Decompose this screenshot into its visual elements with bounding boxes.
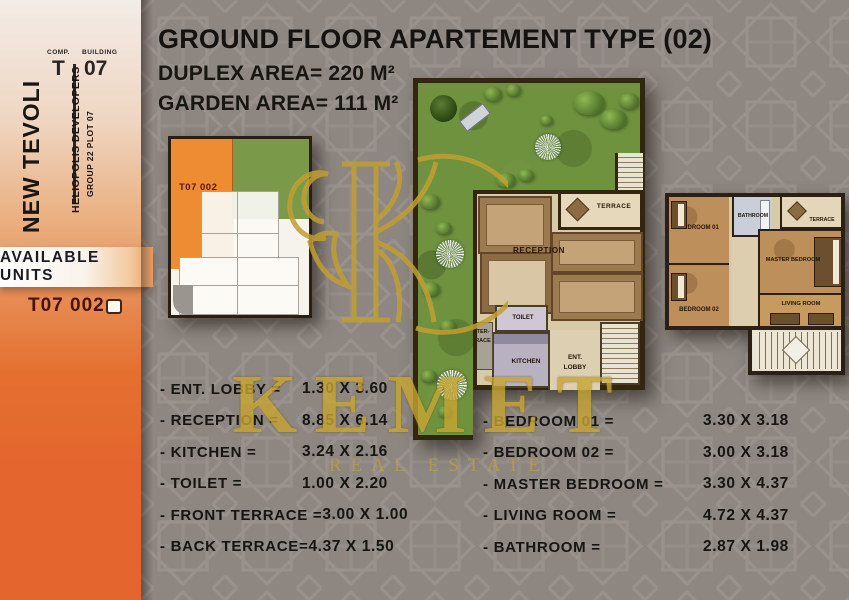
- dimension-value: 4.72 X 4.37: [703, 507, 789, 525]
- dimension-row: - BEDROOM 02 = 3.00 X 3.18: [483, 443, 823, 463]
- bush-icon: [540, 115, 553, 125]
- unit-checkbox[interactable]: [106, 299, 122, 314]
- sidebar-shadow: [141, 0, 153, 600]
- ent-lobby-label-line1: ENT.: [554, 354, 596, 361]
- available-units-banner: AVAILABLE UNITS: [0, 247, 153, 287]
- dimension-row: - RECEPTION = 8.85 X 6.14: [160, 411, 470, 431]
- dimension-row: - BATHROOM = 2.87 X 1.98: [483, 537, 823, 557]
- comp-value: T: [52, 57, 65, 81]
- dimension-value: 3.30 X 4.37: [703, 475, 789, 493]
- bush-icon: [436, 222, 452, 234]
- staircase: [600, 322, 640, 385]
- bush-icon: [496, 173, 516, 187]
- dimension-row: - BACK TERRACE= 4.37 X 1.50: [160, 537, 470, 557]
- tree-icon: [430, 95, 457, 122]
- building-value: 07: [84, 57, 107, 81]
- toilet-room: TOILET: [495, 305, 548, 332]
- first-floor-plan: BEDROOM 01 BATHROOM TERRACE MASTER BEDRO…: [665, 193, 845, 375]
- dimension-row: - FRONT TERRACE = 3.00 X 1.00: [160, 505, 470, 525]
- dimension-value: 3.00 X 3.18: [703, 444, 789, 462]
- front-garden: [413, 78, 645, 192]
- bush-icon: [422, 282, 440, 296]
- dimension-row: - KITCHEN = 3.24 X 2.16: [160, 442, 470, 462]
- first-floor-dimensions-list: - BEDROOM 01 = 3.30 X 3.18 - BEDROOM 02 …: [483, 411, 823, 569]
- upper-terrace-room: TERRACE: [780, 197, 841, 229]
- dimension-label: - RECEPTION =: [160, 412, 302, 429]
- reception-label: RECEPTION: [489, 246, 589, 255]
- fountain-icon: [535, 134, 561, 160]
- hallway: [732, 237, 758, 326]
- project-name: NEW TEVOLI: [18, 80, 45, 233]
- dimension-value: 3.30 X 3.18: [703, 412, 789, 430]
- duplex-area-text: DUPLEX AREA= 220 M²: [158, 62, 395, 86]
- toilet-label: TOILET: [501, 315, 545, 321]
- first-floor-building: BEDROOM 01 BATHROOM TERRACE MASTER BEDRO…: [665, 193, 845, 330]
- stair-block: [748, 330, 845, 375]
- bush-icon: [600, 109, 627, 129]
- plot-info: GROUP 22 PLOT 07: [85, 111, 95, 197]
- garden-area-text: GARDEN AREA= 111 M²: [158, 92, 399, 116]
- sofa-set-icon: [551, 273, 643, 321]
- dimension-label: - TOILET =: [160, 475, 302, 492]
- ground-floor-dimensions-list: - ENT. LOBBY = 1.30 X 3.60 - RECEPTION =…: [160, 379, 470, 568]
- brochure-page: COMP. T BUILDING 07 NEW TEVOLI HELIOPOLI…: [0, 0, 849, 600]
- wall: [473, 192, 477, 390]
- terrace-room: TERRACE: [558, 192, 640, 230]
- dimension-row: - MASTER BEDROOM = 3.30 X 4.37: [483, 474, 823, 494]
- dimension-label: - BEDROOM 01 =: [483, 413, 703, 430]
- key-plan-unit-label: T07 002: [179, 182, 217, 193]
- bedroom-01-room: BEDROOM 01: [669, 197, 729, 263]
- key-plan-wall: [201, 233, 279, 234]
- dimension-label: - ENT. LOBBY =: [160, 381, 302, 398]
- ent-lobby-label-line2: LOBBY: [554, 364, 596, 371]
- key-plan-terrace: [173, 285, 193, 315]
- dimension-value: 4.37 X 1.50: [308, 538, 394, 556]
- sun-lounger-icon: [459, 103, 491, 132]
- dimension-value: 1.00 X 2.20: [302, 475, 388, 493]
- bush-icon: [518, 169, 534, 181]
- bush-icon: [573, 91, 605, 115]
- terrace-label: TERRACE: [587, 203, 641, 210]
- key-plan-wall: [179, 285, 299, 286]
- kitchen-label: KITCHEN: [498, 358, 554, 365]
- dimension-label: - MASTER BEDROOM =: [483, 476, 703, 493]
- dimension-value: 1.30 X 3.60: [302, 380, 388, 398]
- wall: [473, 190, 645, 194]
- sidebar: COMP. T BUILDING 07 NEW TEVOLI HELIOPOLI…: [0, 0, 141, 600]
- dimension-value: 3.00 X 1.00: [322, 506, 408, 524]
- key-plan-rooms-lower: [179, 257, 299, 315]
- bathroom-label: BATHROOM: [734, 213, 772, 219]
- dimension-label: - BATHROOM =: [483, 539, 703, 556]
- bush-icon: [484, 87, 502, 101]
- sofa-icon: [770, 313, 800, 325]
- dimension-label: - BEDROOM 02 =: [483, 444, 703, 461]
- sofa-icon: [808, 313, 834, 325]
- comp-label: COMP.: [47, 49, 70, 56]
- bush-icon: [440, 320, 456, 332]
- dimension-label: - FRONT TERRACE =: [160, 507, 322, 524]
- bedroom-02-room: BEDROOM 02: [669, 263, 729, 326]
- entrance-lobby-room: ENT. LOBBY: [548, 330, 600, 390]
- dimension-row: - TOILET = 1.00 X 2.20: [160, 474, 470, 494]
- dimension-row: - ENT. LOBBY = 1.30 X 3.60: [160, 379, 470, 399]
- dimension-value: 2.87 X 1.98: [703, 538, 789, 556]
- bedroom-02-label: BEDROOM 02: [671, 307, 727, 313]
- bed-icon: [671, 273, 687, 301]
- garden-stairs: [615, 153, 643, 192]
- unit-code-text: T07 002: [28, 295, 105, 317]
- fountain-icon: [436, 240, 464, 268]
- dimension-row: - LIVING ROOM = 4.72 X 4.37: [483, 506, 823, 526]
- living-room-label: LIVING ROOM: [768, 301, 834, 307]
- bush-icon: [506, 84, 521, 96]
- page-title: GROUND FLOOR APARTEMENT TYPE (02): [158, 24, 712, 55]
- bush-icon: [619, 93, 639, 109]
- living-room: LIVING ROOM: [758, 293, 841, 326]
- key-plan-wall: [237, 191, 238, 315]
- dimension-value: 8.85 X 6.14: [302, 412, 388, 430]
- upper-terrace-label: TERRACE: [802, 217, 842, 223]
- dimension-label: - BACK TERRACE=: [160, 538, 308, 555]
- dimension-value: 3.24 X 2.16: [302, 443, 388, 461]
- master-bedroom-room: MASTER BEDROOM: [758, 229, 841, 293]
- patio-table-icon: [565, 197, 589, 221]
- master-bedroom-label: MASTER BEDROOM: [762, 257, 824, 263]
- dimension-label: - LIVING ROOM =: [483, 507, 703, 524]
- developer-name: HELIOPOLIS DEVELOPERS: [70, 66, 82, 213]
- available-units-label: AVAILABLE UNITS: [0, 249, 153, 285]
- ground-floor-building: TERRACE RECEPTION TOILET KITCHEN ENT. LO…: [473, 192, 645, 390]
- building-label: BUILDING: [82, 49, 117, 56]
- bush-icon: [420, 194, 440, 209]
- bed-icon: [671, 201, 687, 229]
- key-plan: T07 002: [168, 136, 312, 318]
- dimension-row: - BEDROOM 01 = 3.30 X 3.18: [483, 411, 823, 431]
- dimension-label: - KITCHEN =: [160, 444, 302, 461]
